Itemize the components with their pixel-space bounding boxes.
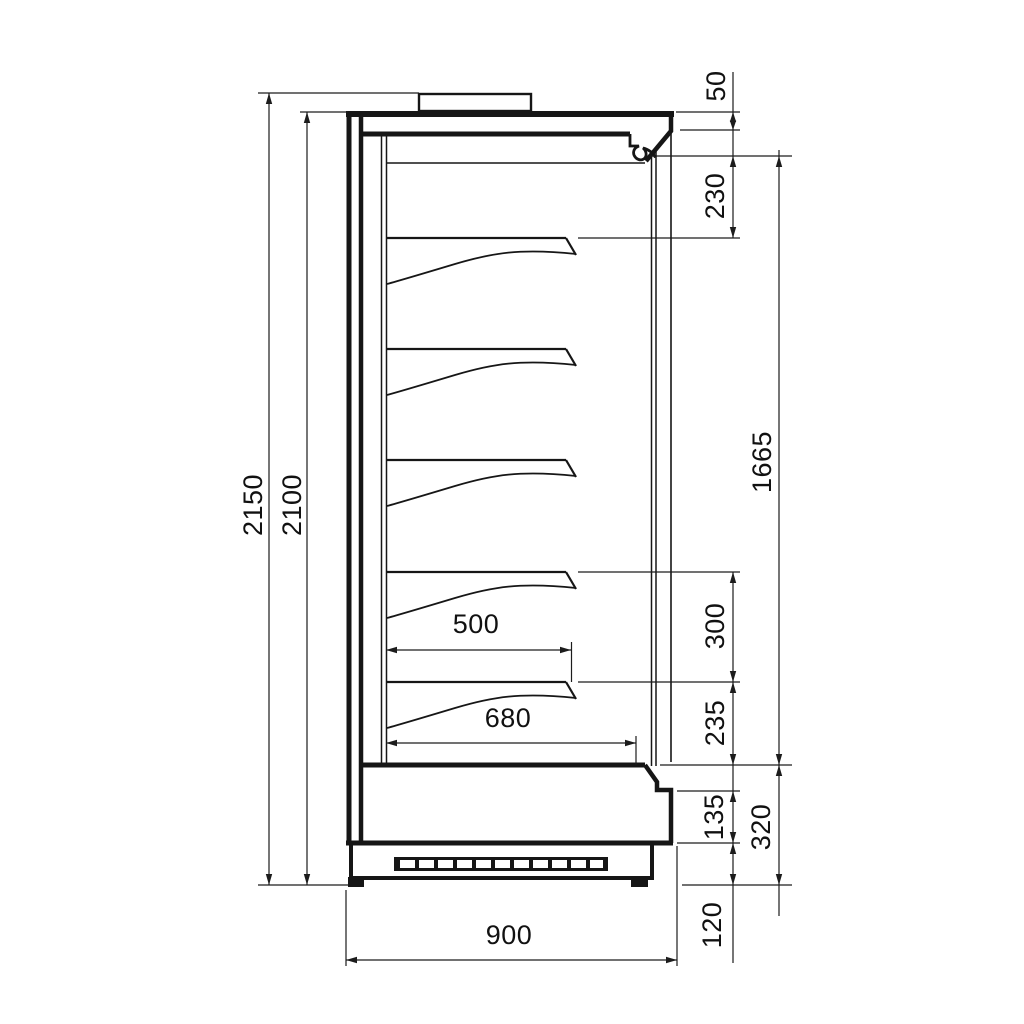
dim-label-shelf-depth: 500 xyxy=(453,609,500,639)
technical-drawing-cabinet-side-section: 2150 2100 50 230 300 235 xyxy=(0,0,1024,1024)
dim-label-top-offset: 50 xyxy=(701,70,731,101)
grille-slot xyxy=(457,860,472,868)
grille-slot xyxy=(571,860,586,868)
grille-slot xyxy=(419,860,434,868)
dim-label-base-section: 320 xyxy=(746,804,776,851)
grille-slot xyxy=(400,860,415,868)
grille-slot xyxy=(533,860,548,868)
rear-foot xyxy=(348,877,364,887)
ventilation-grille xyxy=(394,857,608,871)
dim-label-cabinet-height: 2100 xyxy=(277,474,307,536)
dim-label-lower-front-panel: 135 xyxy=(699,794,729,841)
grille-slot xyxy=(514,860,529,868)
dim-label-overall-depth: 900 xyxy=(486,920,533,950)
grille-slot xyxy=(552,860,567,868)
grille-slot xyxy=(495,860,510,868)
grille-slot xyxy=(438,860,453,868)
dim-label-deck-depth: 680 xyxy=(485,703,532,733)
dim-label-shelf-pitch: 300 xyxy=(700,603,730,650)
dim-label-opening-height: 1665 xyxy=(747,431,777,493)
grille-slot xyxy=(590,860,603,868)
front-foot xyxy=(631,877,648,887)
dim-label-plinth-height: 120 xyxy=(697,902,727,949)
dim-label-overall-height: 2150 xyxy=(238,474,268,536)
dim-label-canopy-zone: 230 xyxy=(700,173,730,220)
grille-slot xyxy=(476,860,491,868)
dim-label-deck-to-shelf: 235 xyxy=(700,700,730,747)
top-spacer-block xyxy=(419,94,531,111)
